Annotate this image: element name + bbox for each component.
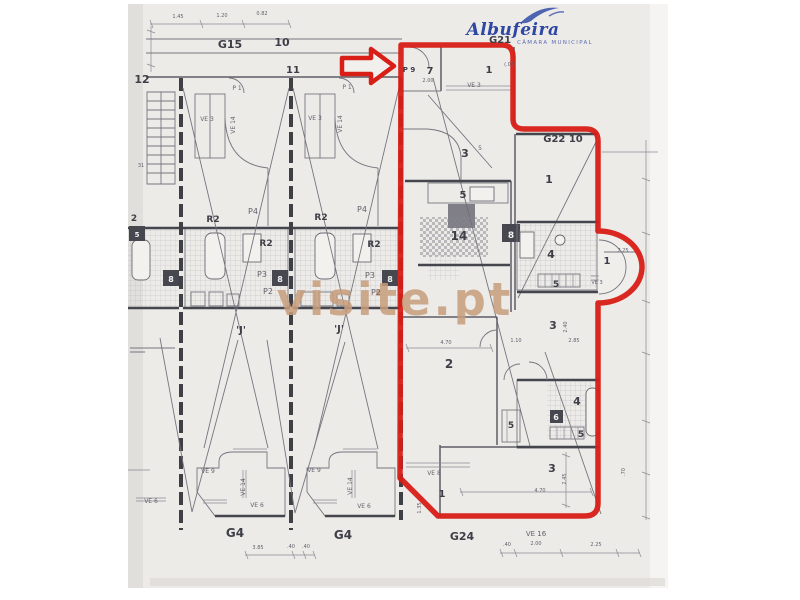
plan-label: 1 xyxy=(486,65,493,76)
plan-label: 2.25 xyxy=(590,542,601,548)
floorplan-svg: Albufeira CÂMARA MUNICIPAL visite.pt 1.4… xyxy=(0,0,800,600)
plan-label: P3 xyxy=(257,270,267,279)
plan-label: 3 xyxy=(549,319,557,332)
plan-label: P 9 xyxy=(403,66,416,74)
plan-label: 4.70 xyxy=(534,488,545,494)
plan-label: 5 xyxy=(508,421,514,431)
plan-label: 12 xyxy=(134,73,149,86)
plan-label: 7 xyxy=(427,66,434,77)
plan-label: 3 xyxy=(461,147,469,160)
plan-label: 8 xyxy=(387,275,393,284)
logo-name: Albufeira xyxy=(465,20,560,40)
plan-label: G15 xyxy=(218,38,242,51)
plan-label: VE 6 xyxy=(357,503,371,510)
plan-label: 1 xyxy=(439,489,446,500)
plan-label: P 1 xyxy=(342,84,352,91)
plan-label: G24 xyxy=(450,530,475,543)
plan-label: 1 xyxy=(604,256,611,267)
plan-label: R2 xyxy=(367,240,380,250)
plan-label: P2 xyxy=(263,287,273,296)
plan-label: VE 14 xyxy=(347,477,354,495)
plan-label: VE 3 xyxy=(200,116,214,123)
plan-label: R2 xyxy=(259,239,272,249)
plan-label: 31 xyxy=(138,163,144,169)
plan-label: 4.70 xyxy=(440,340,451,346)
plan-label: 5 xyxy=(135,231,140,239)
plan-label: G22 10 xyxy=(543,134,583,145)
plan-label: 8 xyxy=(168,275,174,284)
plan-label: 2.40 xyxy=(563,321,569,332)
plan-label: 3 xyxy=(548,462,556,475)
plan-label: 8 xyxy=(508,231,514,241)
plan-label: 3.85 xyxy=(252,545,263,551)
plan-label: VE 6 xyxy=(250,502,264,509)
plan-label: R2 xyxy=(206,215,219,225)
plan-label: VE 3 xyxy=(467,82,481,89)
plan-label: .40 xyxy=(287,544,295,550)
scan-bottom-shade xyxy=(150,578,665,586)
plan-label: .40 xyxy=(302,544,310,550)
plan-label: VE 16 xyxy=(526,530,547,538)
plan-label: 5 xyxy=(553,280,559,290)
plan-label: 4 xyxy=(547,248,555,261)
scan-right-shade xyxy=(650,4,668,588)
plan-label: VE 3 xyxy=(591,280,602,286)
plan-label: P2 xyxy=(371,288,381,297)
plan-label: VE 8 xyxy=(427,470,441,477)
plan-label: G4 xyxy=(226,526,244,540)
plan-label: 1.45 xyxy=(172,14,183,20)
plan-label: 1.10 xyxy=(510,338,521,344)
plan-label: 1 xyxy=(545,173,553,186)
plan-label: VE 14 xyxy=(337,115,344,133)
plan-label: VE 6 xyxy=(144,498,158,505)
plan-label: 'J' xyxy=(236,325,246,336)
plan-label: .40 xyxy=(503,542,511,548)
plan-label: G21 xyxy=(489,35,511,46)
floorplan-page: Albufeira CÂMARA MUNICIPAL visite.pt 1.4… xyxy=(0,0,800,600)
plan-label: VE 9 xyxy=(201,468,215,475)
plan-label: .70 xyxy=(621,468,627,476)
plan-label: VE 9 xyxy=(307,467,321,474)
plan-label: 2 xyxy=(445,357,453,371)
plan-label: 2.85 xyxy=(568,338,579,344)
plan-label: 4 xyxy=(573,395,581,408)
plan-label: R2 xyxy=(314,213,327,223)
plan-label: 14 xyxy=(451,229,468,243)
plan-label: 5 xyxy=(478,145,482,152)
plan-label: 11 xyxy=(286,65,300,76)
plan-label: P 1 xyxy=(232,85,242,92)
plan-label: 2.00 xyxy=(422,78,433,84)
plan-label: 2.45 xyxy=(562,473,568,484)
plan-label: VE 14 xyxy=(230,116,237,134)
logo-subtitle: CÂMARA MUNICIPAL xyxy=(517,39,593,46)
plan-label: 2.00 xyxy=(530,541,541,547)
plan-label: P4 xyxy=(357,205,367,214)
plan-label: 10 xyxy=(274,36,290,49)
plan-label: 2 xyxy=(131,214,137,224)
plan-label: 0.82 xyxy=(256,11,267,17)
plan-label: VE 3 xyxy=(308,115,322,122)
plan-label: 1.20 xyxy=(216,13,227,19)
plan-label: 8 xyxy=(277,275,283,284)
plan-label: 5 xyxy=(460,190,467,201)
plan-label: 'J' xyxy=(334,324,344,335)
plan-label: 1.35 xyxy=(417,502,423,513)
plan-label: VE 14 xyxy=(240,478,247,496)
watermark: visite.pt xyxy=(277,273,514,326)
plan-label: P3 xyxy=(365,271,375,280)
plan-label: (.05) xyxy=(504,62,516,68)
plan-label: G4 xyxy=(334,528,352,542)
plan-label: P4 xyxy=(248,207,258,216)
plan-label: 6 xyxy=(553,413,559,422)
plan-label: 7.25 xyxy=(617,248,628,254)
plan-label: 5 xyxy=(578,430,584,440)
